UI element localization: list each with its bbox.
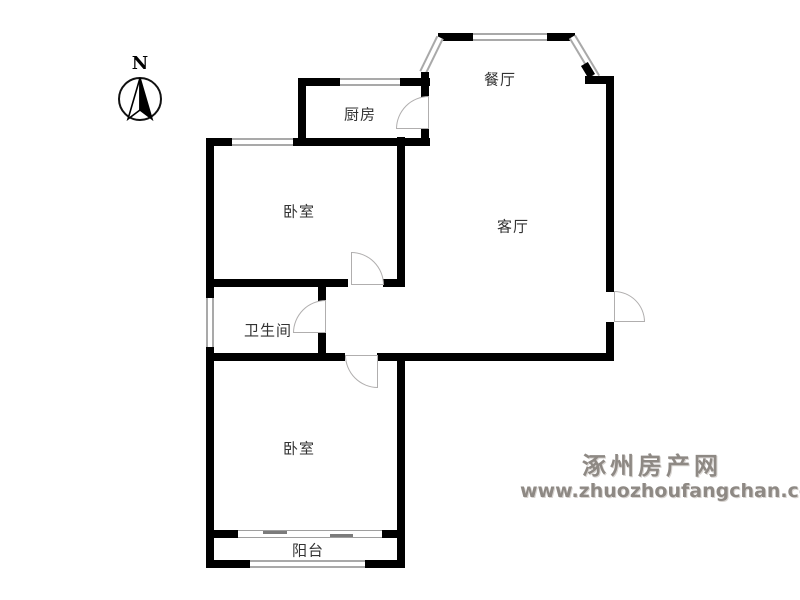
window-balcony: [250, 560, 365, 568]
north-arrow-icon: [118, 72, 162, 122]
room-label-bedroom-top: 卧室: [283, 201, 315, 222]
sliding-door-panel: [330, 534, 353, 537]
wall-segment: [206, 138, 214, 298]
sliding-door-panel: [263, 531, 287, 534]
door-bedroom-top: [351, 252, 384, 285]
wall-segment: [606, 322, 614, 361]
room-label-kitchen: 厨房: [344, 104, 376, 125]
wall-segment: [421, 129, 429, 146]
wall-segment: [206, 138, 232, 146]
door-bathroom: [293, 300, 326, 333]
wall-segment: [377, 353, 614, 361]
wall-segment: [206, 560, 250, 568]
room-label-balcony: 阳台: [292, 540, 324, 561]
wall-segment: [365, 560, 405, 568]
room-label-bathroom: 卫生间: [244, 320, 292, 341]
watermark: 涿州房产网 www.zhuozhoufangchan.com: [520, 453, 784, 502]
room-label-bedroom-bottom: 卧室: [283, 438, 315, 459]
watermark-site-name: 涿州房产网: [520, 453, 784, 481]
door-entrance: [614, 291, 645, 322]
wall-segment: [298, 86, 306, 138]
wall-segment: [206, 279, 348, 287]
wall-segment: [383, 279, 405, 287]
wall-segment: [206, 530, 238, 538]
wall-segment: [206, 353, 345, 361]
door-bedroom-bottom: [345, 355, 378, 388]
wall-segment: [606, 80, 614, 292]
window-dining: [473, 33, 547, 41]
door-kitchen: [396, 96, 429, 129]
watermark-site-url: www.zhuozhoufangchan.com: [520, 481, 784, 503]
window-bedroom-top: [232, 138, 293, 146]
room-label-dining: 餐厅: [484, 69, 516, 90]
wall-segment: [382, 530, 405, 538]
compass-north-label: N: [132, 53, 148, 74]
window-kitchen: [340, 78, 400, 86]
floor-plan: N: [0, 0, 800, 600]
window-bathroom: [206, 298, 214, 347]
window-dining-diagonal-left: [419, 36, 443, 75]
wall-segment: [397, 137, 405, 287]
room-label-living: 客厅: [497, 216, 529, 237]
sliding-door-balcony: [238, 530, 382, 538]
wall-segment: [298, 78, 340, 86]
wall-segment: [293, 138, 430, 146]
wall-segment: [421, 72, 429, 98]
